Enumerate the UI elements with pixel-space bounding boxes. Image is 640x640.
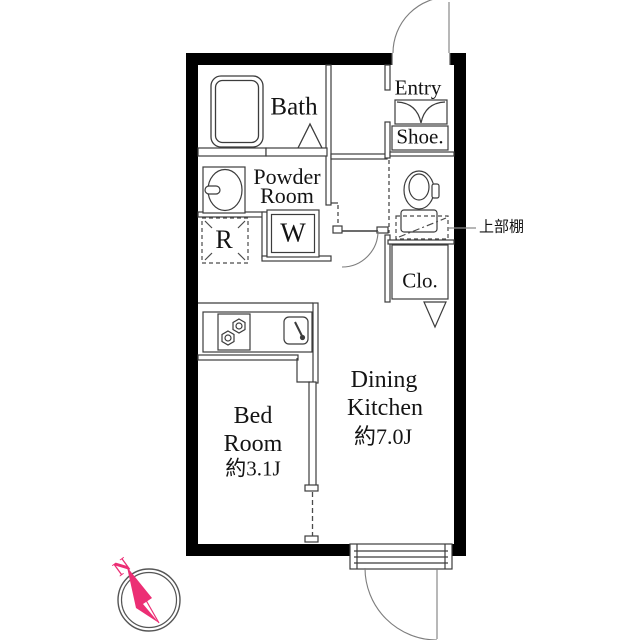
toilet-icon: [401, 171, 439, 232]
bedroom-step-line: [297, 358, 310, 382]
hall-threshold: [331, 154, 387, 159]
washing-machine-label: W: [280, 220, 305, 247]
entry-label: Entry: [395, 78, 442, 99]
wall-bath-east: [326, 65, 331, 205]
closet-label: Clo.: [400, 271, 440, 292]
bed-room-label-line1: Bed: [234, 404, 273, 428]
bed-room-size: 約3.1J: [225, 459, 280, 480]
closet-folding-door-icon: [424, 302, 446, 327]
slider-jamb-top: [305, 485, 318, 491]
bathtub-icon: [211, 76, 263, 147]
wall-closet-west: [385, 235, 390, 302]
wall-washer-niche-west: [262, 212, 267, 258]
hall-door-jamb: [333, 226, 342, 233]
upper-shelf-label: 上部棚: [479, 221, 524, 236]
wall-bottom-left-segment: [186, 544, 350, 556]
bath-label: Bath: [270, 95, 317, 120]
dining-kitchen-label-line2: Kitchen: [347, 396, 423, 420]
refrigerator-label: R: [215, 227, 232, 253]
dk-door-jamb: [377, 227, 388, 233]
wall-top-left-segment: [186, 53, 392, 65]
wall-entry-west-lower: [385, 122, 390, 158]
bath-folding-door-icon: [298, 124, 322, 148]
slider-jamb-bottom: [305, 536, 318, 542]
stove-icon: [218, 314, 250, 350]
terrace-door-icon: [365, 568, 437, 640]
powder-room-label-line2: Room: [260, 185, 314, 207]
wall-right: [454, 53, 466, 556]
wall-entry-west-upper: [385, 65, 390, 90]
wall-bedroom-partition: [309, 382, 316, 486]
vanity-sink-icon: [203, 167, 245, 213]
wall-bottom-right-segment: [452, 544, 466, 556]
kitchen-sink-icon: [284, 317, 308, 344]
kitchen-counter: [203, 312, 312, 352]
floor-plan: Bath Powder Room R W Entry Shoe. Clo. Di…: [0, 0, 640, 640]
bed-room-label-line2: Room: [224, 432, 283, 456]
floor-plan-drawing: [0, 0, 640, 640]
wall-left: [186, 53, 198, 556]
dining-kitchen-label-line1: Dining: [351, 368, 418, 392]
entry-door-icon: [393, 0, 449, 53]
dining-kitchen-size: 約7.0J: [354, 426, 412, 448]
shoe-cabinet-label: Shoe.: [396, 127, 443, 148]
wall-kitchen-stub: [313, 303, 318, 383]
wall-bath-south: [198, 148, 266, 156]
bath-door-threshold: [266, 148, 327, 156]
wall-toilet-closet-divider: [388, 240, 454, 244]
wall-shoe-toilet-divider: [390, 152, 454, 156]
wall-bedroom-north: [198, 355, 298, 360]
terrace-window-frame: [350, 544, 452, 569]
dk-door-icon: [342, 231, 378, 267]
